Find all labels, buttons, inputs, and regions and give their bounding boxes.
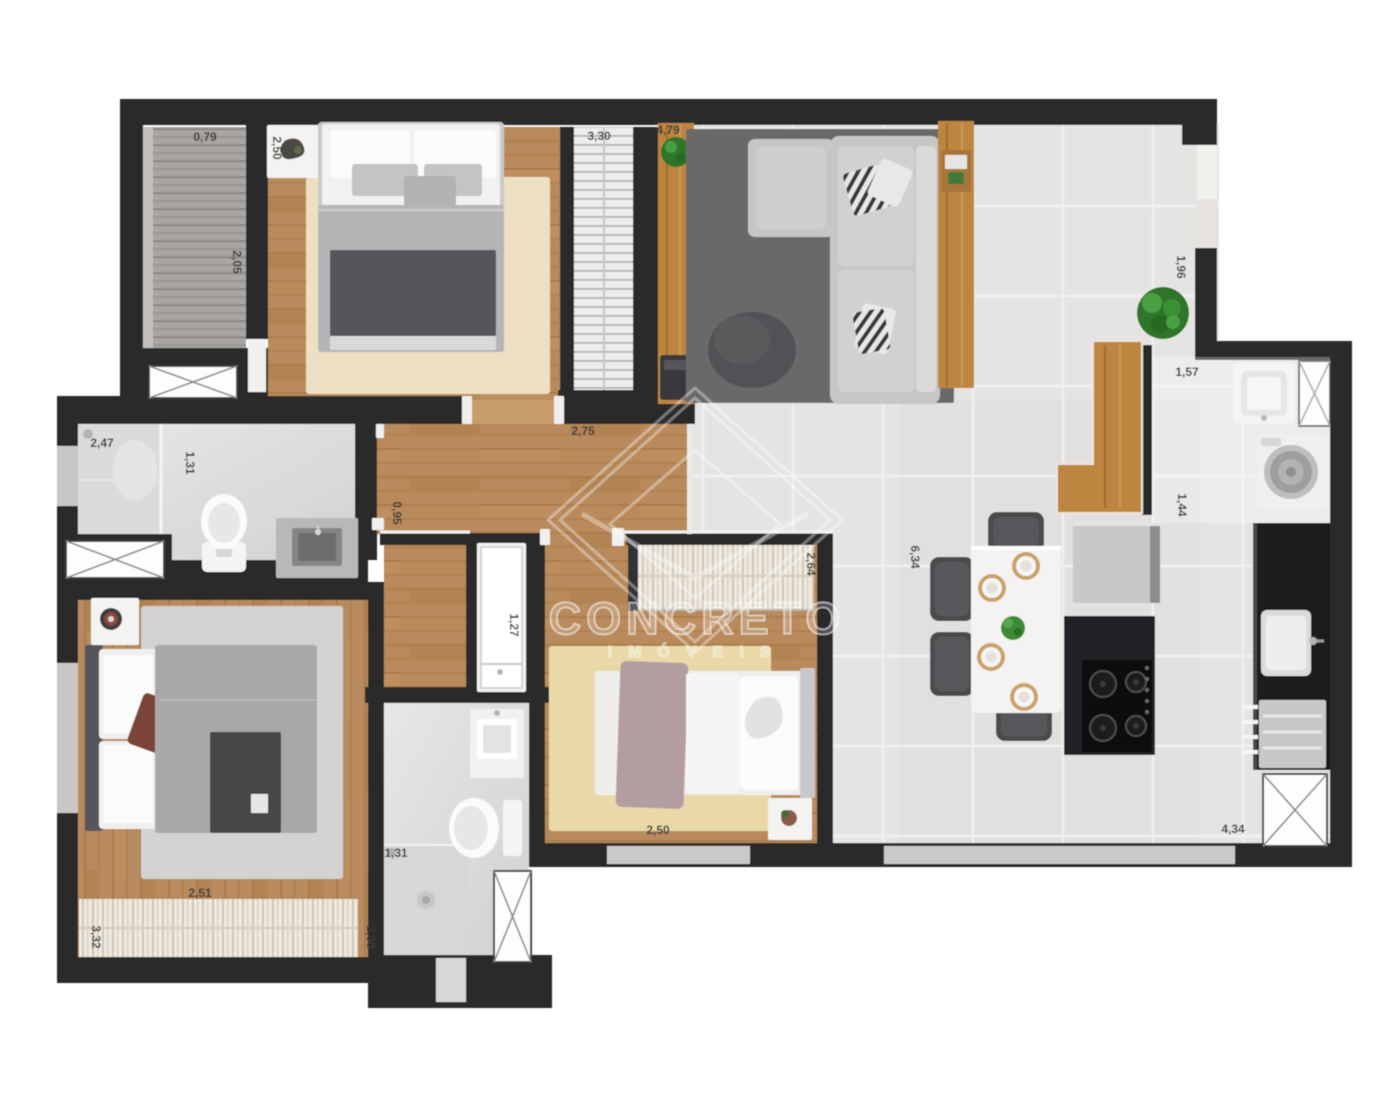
svg-text:2,30: 2,30 [364,925,378,949]
svg-text:1,96: 1,96 [1174,255,1188,279]
svg-text:2,50: 2,50 [270,136,284,160]
svg-text:6,34: 6,34 [908,545,922,569]
svg-text:1,27: 1,27 [507,613,521,637]
svg-text:IMÓVEIS: IMÓVEIS [608,642,787,661]
svg-text:4,79: 4,79 [656,123,680,137]
svg-text:3,32: 3,32 [89,925,103,949]
svg-text:2,75: 2,75 [571,424,595,438]
svg-text:2,51: 2,51 [188,886,212,900]
svg-text:3,30: 3,30 [587,129,611,143]
svg-text:2,47: 2,47 [90,436,114,450]
svg-text:1,31: 1,31 [384,846,408,860]
svg-text:2,05: 2,05 [230,250,244,274]
svg-text:2,50: 2,50 [646,823,670,837]
svg-text:0,79: 0,79 [193,130,217,144]
svg-text:2,64: 2,64 [804,552,818,576]
svg-text:1,31: 1,31 [183,451,197,475]
svg-text:1,44: 1,44 [1175,493,1189,517]
svg-text:4,34: 4,34 [1221,822,1245,836]
svg-text:0,95: 0,95 [390,501,404,525]
svg-text:CONCRETO: CONCRETO [549,593,846,644]
svg-text:1,57: 1,57 [1175,365,1199,379]
